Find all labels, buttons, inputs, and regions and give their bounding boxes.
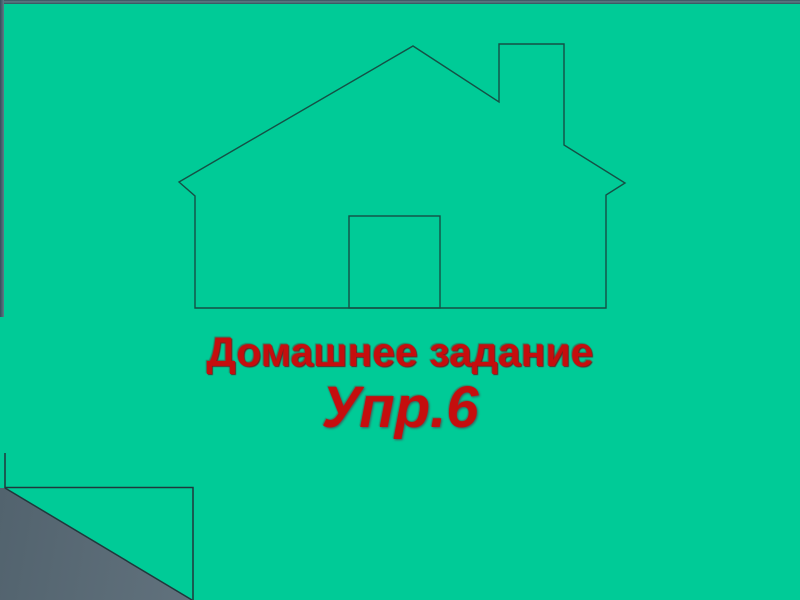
slide-exercise-text: Упр.6: [0, 377, 800, 439]
caption-block: Домашнее задание Упр.6: [0, 329, 800, 439]
corner-fold-diagonal-line: [5, 488, 192, 600]
corner-notch-line: [5, 453, 193, 600]
house-outline-drawing: [179, 44, 625, 308]
slide: Домашнее задание Упр.6: [0, 0, 800, 600]
house-door-drawing: [349, 216, 440, 308]
slide-title: Домашнее задание: [0, 329, 800, 375]
drawing-layer: [0, 0, 800, 600]
